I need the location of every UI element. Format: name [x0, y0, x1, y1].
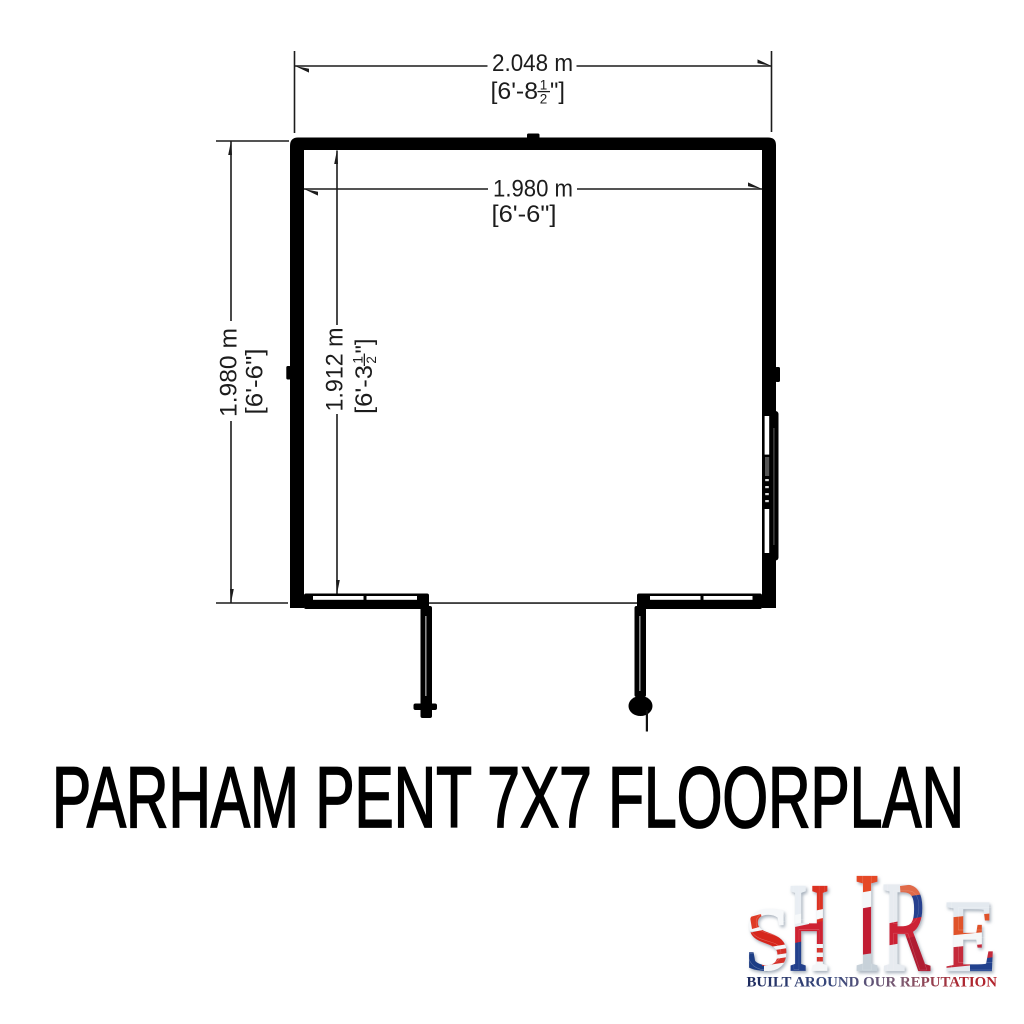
- svg-text:[6'-8: [6'-8: [491, 78, 539, 105]
- svg-text:2: 2: [540, 91, 548, 106]
- svg-text:PARHAM PENT 7X7 FLOORPLAN: PARHAM PENT 7X7 FLOORPLAN: [52, 750, 964, 846]
- svg-text:[6'-6"]: [6'-6"]: [242, 349, 269, 415]
- svg-text:1: 1: [350, 356, 365, 364]
- svg-text:[6'-6"]: [6'-6"]: [492, 201, 557, 228]
- svg-text:"]: "]: [351, 339, 378, 354]
- svg-text:1.980 m: 1.980 m: [493, 176, 573, 203]
- svg-text:BUILT AROUND OUR REPUTATION: BUILT AROUND OUR REPUTATION: [747, 975, 998, 991]
- svg-text:[6'-3: [6'-3: [351, 365, 378, 414]
- svg-text:1.980 m: 1.980 m: [216, 328, 243, 417]
- svg-text:2: 2: [364, 356, 379, 364]
- svg-text:2.048 m: 2.048 m: [492, 50, 573, 77]
- svg-text:1.912 m: 1.912 m: [322, 328, 349, 412]
- svg-text:"]: "]: [550, 78, 565, 105]
- svg-text:1: 1: [540, 78, 548, 93]
- svg-text:S: S: [745, 888, 791, 988]
